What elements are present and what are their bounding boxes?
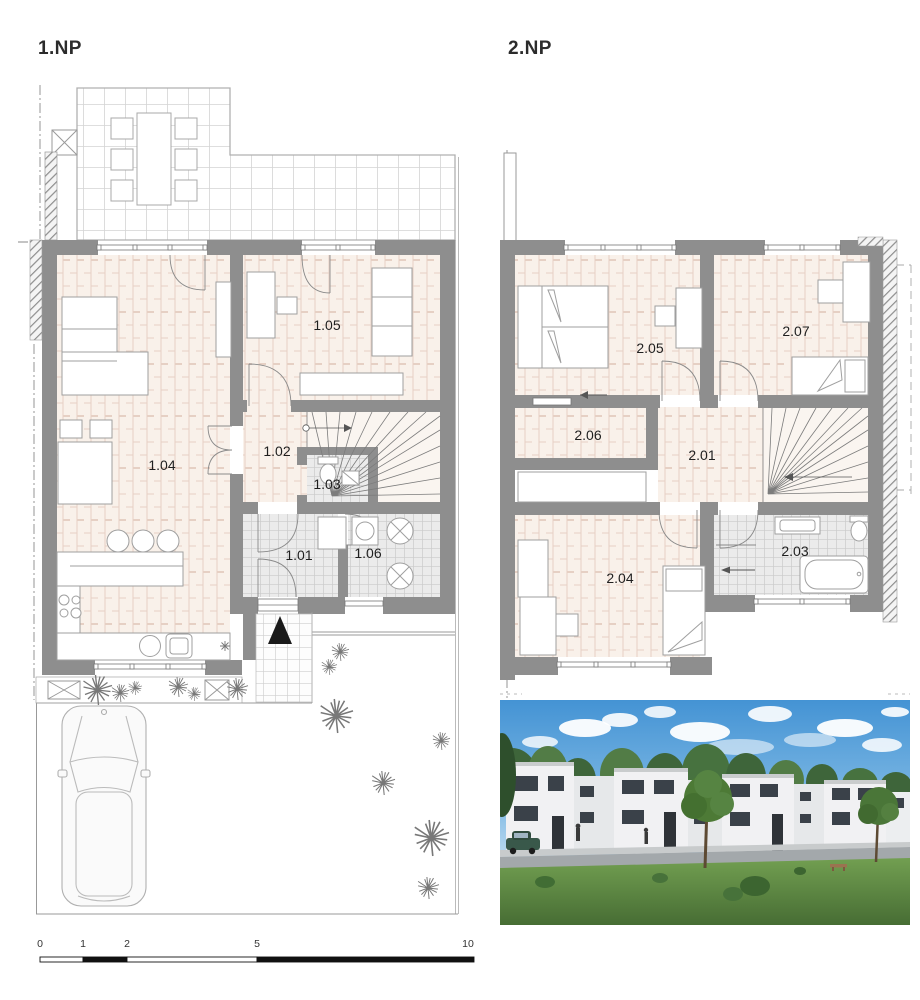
floor2-plan (500, 150, 911, 698)
hall-closet-icon (318, 517, 346, 549)
lawn (500, 858, 910, 925)
party-wall-hatch (883, 240, 897, 622)
single-bed-icon-2-04 (663, 566, 705, 655)
stairs2-floor (763, 407, 868, 502)
scale-tick-2: 2 (124, 938, 130, 950)
scale-tick-5: 5 (254, 938, 260, 950)
room-label-1-04: 1.04 (148, 457, 175, 473)
planter-icon (52, 130, 77, 155)
car-icon (58, 706, 150, 906)
fence-line (456, 157, 459, 914)
room-label-2-03: 2.03 (781, 543, 808, 559)
floor1-title: 1.NP (38, 38, 82, 60)
scale-tick-1: 1 (80, 938, 86, 950)
toilet-icon-2-03 (850, 516, 868, 541)
single-bed-icon-2-07 (792, 357, 868, 395)
exterior-render-photo (486, 694, 912, 925)
party-wall-hatch (30, 240, 42, 340)
room-label-1-06: 1.06 (354, 545, 381, 561)
drain-symbol (220, 641, 230, 651)
neighbor-wall-stub (504, 153, 516, 242)
scale-bar-icon (40, 957, 474, 962)
wardrobe-icon-2-05 (676, 288, 702, 348)
nightstand-icon (655, 306, 675, 326)
room-label-1-01: 1.01 (285, 547, 312, 563)
bath-sink-icon (775, 517, 820, 534)
kitchen-sink-icon (140, 634, 193, 658)
floor2-title: 2.NP (508, 38, 552, 60)
scale-tick-10: 10 (462, 938, 474, 950)
room-label-1-05: 1.05 (313, 317, 340, 333)
room-label-2-01: 2.01 (688, 447, 715, 463)
floor1-plan (18, 85, 459, 914)
double-bed-icon (518, 286, 608, 368)
wc-sink-icon (342, 471, 359, 485)
garden-wall-hatch (45, 152, 57, 240)
dining-table-icon (111, 113, 197, 205)
room-label-2-06: 2.06 (574, 427, 601, 443)
floorplan-drawing (0, 0, 920, 1000)
bathtub-icon (800, 556, 868, 593)
neighbor-dashed-outline (896, 265, 911, 495)
floorplan-sheet: 1.NP 2.NP 1.04 1.05 1.02 1.03 1.01 1.06 … (0, 0, 920, 1000)
terrace (45, 88, 455, 240)
scale-tick-0: 0 (37, 938, 43, 950)
room-label-1-02: 1.02 (263, 443, 290, 459)
closet-row-icon (518, 472, 646, 502)
room-label-1-03: 1.03 (313, 476, 340, 492)
room-label-2-07: 2.07 (782, 323, 809, 339)
tv-board-icon (216, 282, 231, 357)
radiator-mark (533, 398, 571, 405)
room-label-2-05: 2.05 (636, 340, 663, 356)
corner-hatch (858, 237, 883, 246)
room-label-2-04: 2.04 (606, 570, 633, 586)
washer-icon (352, 517, 378, 545)
